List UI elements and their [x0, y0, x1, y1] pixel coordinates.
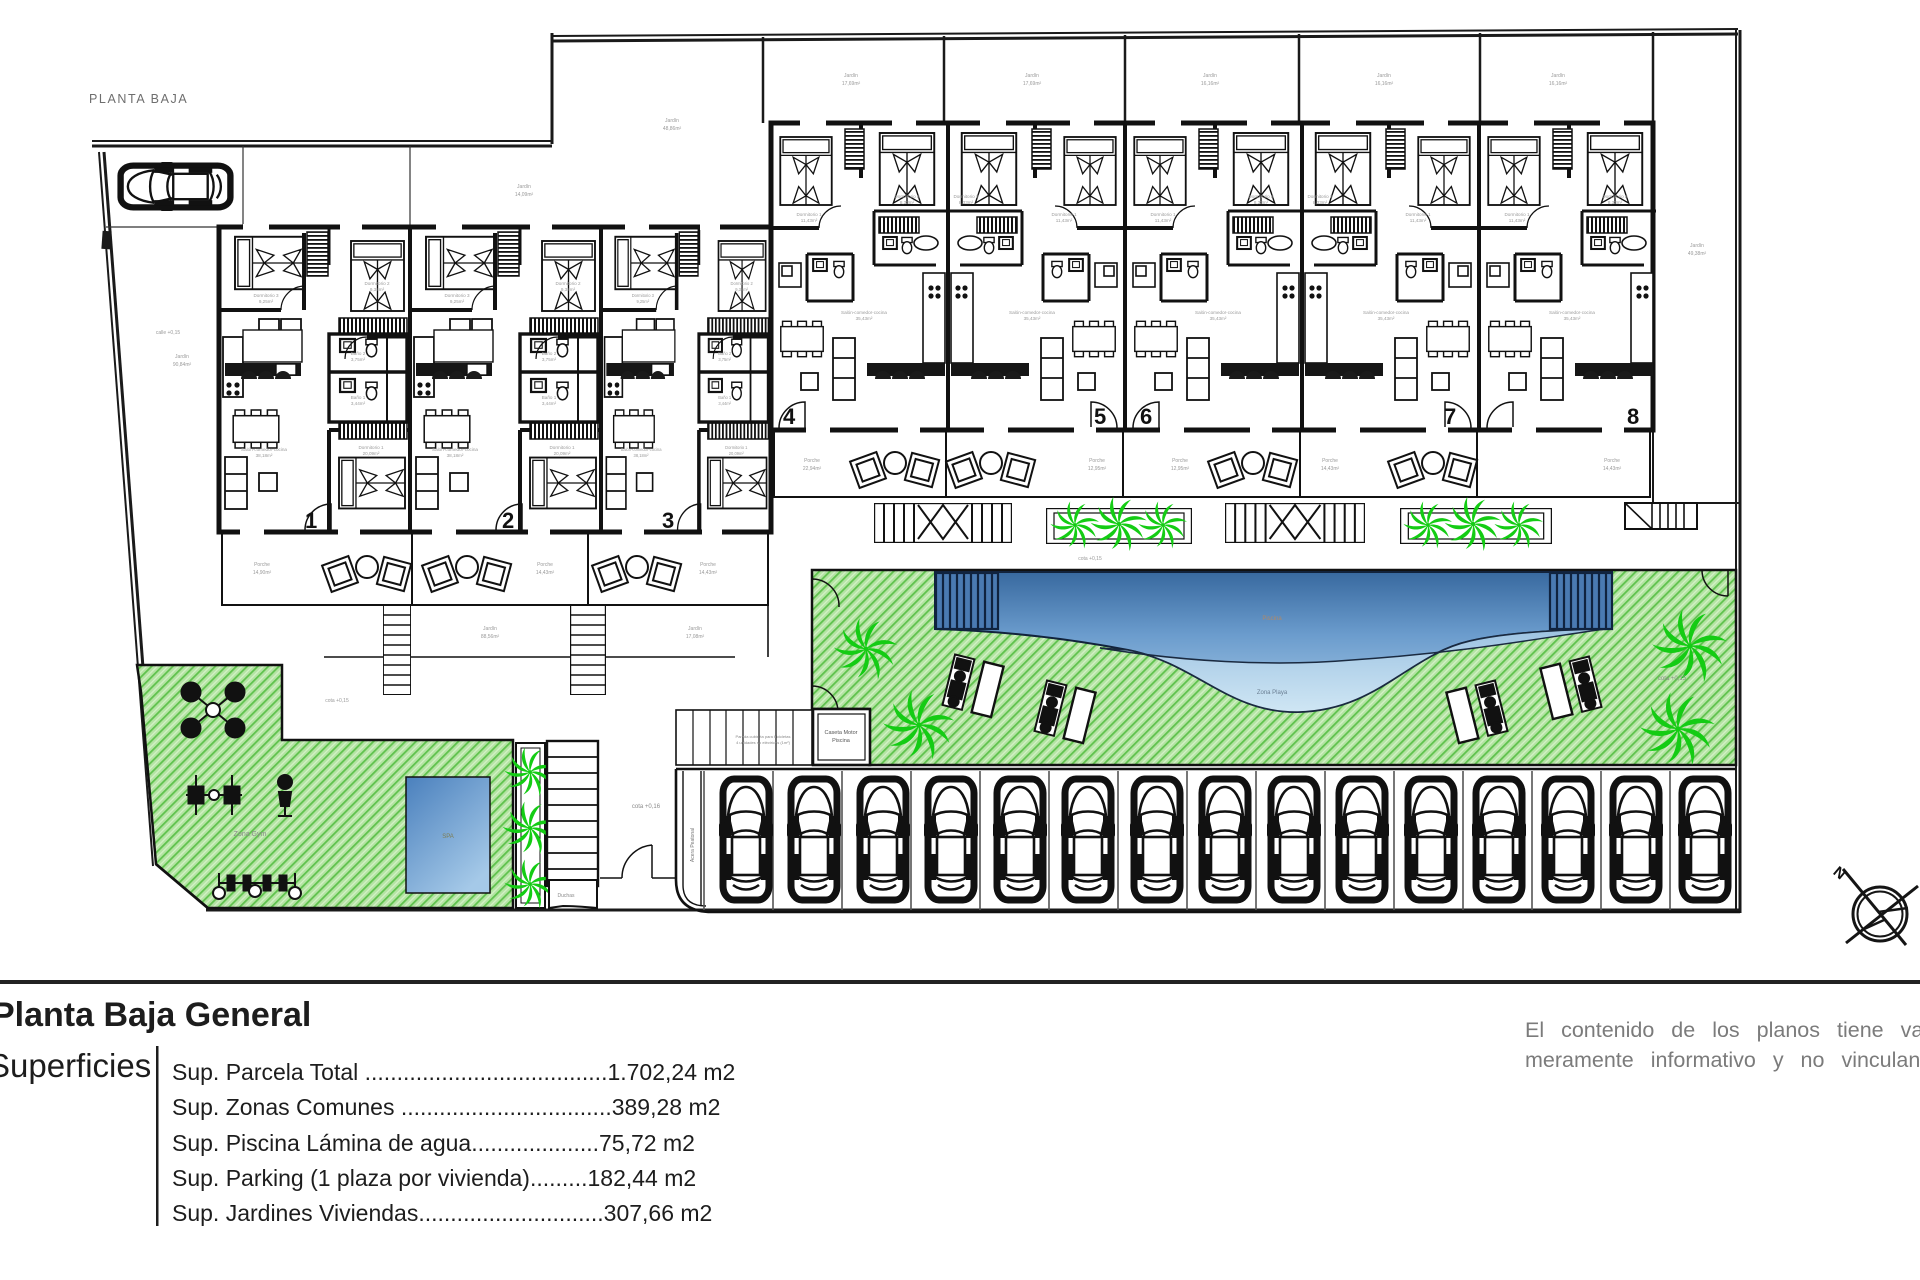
svg-text:Planta Baja General: Planta Baja General — [0, 996, 311, 1034]
svg-text:14,43m²: 14,43m² — [699, 570, 718, 576]
svg-text:Porche: Porche — [700, 562, 716, 568]
svg-text:Zona Gym: Zona Gym — [234, 831, 267, 838]
svg-text:35,43m²: 35,43m² — [1378, 316, 1395, 321]
svg-text:El contenido de los planos tie: El contenido de los planos tiene valor — [1525, 1018, 1920, 1042]
svg-text:2: 2 — [502, 508, 514, 533]
svg-text:Jardín: Jardín — [1377, 73, 1391, 79]
svg-text:Dormitorio 1: Dormitorio 1 — [1405, 212, 1430, 217]
svg-text:Jardín: Jardín — [688, 626, 702, 632]
svg-text:4 unidades no eléctricas (1m²): 4 unidades no eléctricas (1m²) — [736, 740, 790, 745]
svg-text:35,43m²: 35,43m² — [1024, 316, 1041, 321]
svg-text:11,43m²: 11,43m² — [1056, 218, 1073, 223]
svg-text:Porche: Porche — [1604, 458, 1620, 464]
svg-text:Dormitorio 1: Dormitorio 1 — [1150, 212, 1175, 217]
svg-text:Piscina: Piscina — [832, 738, 851, 744]
svg-text:Duchas: Duchas — [558, 893, 575, 899]
svg-text:35,43m²: 35,43m² — [1210, 316, 1227, 321]
svg-text:Porche: Porche — [1322, 458, 1338, 464]
svg-text:Sup. Piscina Lámina de agua...: Sup. Piscina Lámina de agua.............… — [172, 1130, 695, 1156]
svg-text:1: 1 — [305, 508, 317, 533]
svg-text:Dormitorio 2: Dormitorio 2 — [1307, 194, 1332, 199]
svg-text:8: 8 — [1627, 404, 1639, 429]
svg-text:6: 6 — [1140, 404, 1152, 429]
svg-text:90,84m²: 90,84m² — [173, 362, 192, 368]
svg-text:11,43m²: 11,43m² — [1155, 218, 1172, 223]
svg-text:16,16m²: 16,16m² — [1375, 81, 1394, 87]
svg-text:Dormitorio 1: Dormitorio 1 — [1504, 212, 1529, 217]
svg-text:Acera Peatonal: Acera Peatonal — [690, 828, 696, 862]
svg-text:cota +0,16: cota +0,16 — [632, 804, 661, 810]
svg-text:meramente informativo y no vin: meramente informativo y no vinculante — [1525, 1048, 1920, 1072]
svg-text:Sup. Parcela Total ...........: Sup. Parcela Total .....................… — [172, 1059, 735, 1085]
svg-text:11,43m²: 11,43m² — [1509, 218, 1526, 223]
svg-text:8,33m²: 8,33m² — [900, 200, 915, 205]
svg-text:Jardín: Jardín — [844, 73, 858, 79]
svg-text:88,56m²: 88,56m² — [481, 634, 500, 640]
svg-text:PLANTA BAJA: PLANTA BAJA — [89, 92, 188, 106]
svg-text:14,43m²: 14,43m² — [1603, 466, 1622, 472]
svg-text:Sup. Jardines Viviendas.......: Sup. Jardines Viviendas.................… — [172, 1200, 712, 1226]
svg-text:49,38m²: 49,38m² — [1688, 251, 1707, 257]
svg-text:22,94m²: 22,94m² — [803, 466, 822, 472]
svg-text:3: 3 — [662, 508, 674, 533]
svg-text:Jardín: Jardín — [1025, 73, 1039, 79]
svg-text:Salón-comedor-cocina: Salón-comedor-cocina — [1363, 310, 1409, 315]
svg-text:Dormitorio 1: Dormitorio 1 — [1051, 212, 1076, 217]
svg-text:Porche: Porche — [804, 458, 820, 464]
svg-text:14,43m²: 14,43m² — [1321, 466, 1340, 472]
svg-text:SPA: SPA — [442, 834, 454, 840]
svg-text:16,16m²: 16,16m² — [1549, 81, 1568, 87]
svg-text:Dormitorio 2: Dormitorio 2 — [1602, 194, 1627, 199]
svg-text:Caseta Motor: Caseta Motor — [824, 730, 857, 736]
svg-text:Porche: Porche — [537, 562, 553, 568]
svg-text:cota +0,15: cota +0,15 — [1078, 556, 1102, 562]
svg-text:17,69m²: 17,69m² — [1023, 81, 1042, 87]
svg-text:14,09m²: 14,09m² — [515, 192, 534, 198]
svg-text:Jardín: Jardín — [1203, 73, 1217, 79]
svg-text:Jardín: Jardín — [517, 184, 531, 190]
svg-text:Jardín: Jardín — [483, 626, 497, 632]
svg-text:Porche: Porche — [1089, 458, 1105, 464]
svg-text:Zona Playa: Zona Playa — [1257, 690, 1288, 696]
svg-text:Jardín: Jardín — [1551, 73, 1565, 79]
svg-text:12,95m²: 12,95m² — [1088, 466, 1107, 472]
svg-text:Piscina: Piscina — [1262, 616, 1282, 622]
svg-text:14,90m²: 14,90m² — [253, 570, 272, 576]
svg-text:Salón-comedor-cocina: Salón-comedor-cocina — [1549, 310, 1595, 315]
svg-text:35,43m²: 35,43m² — [856, 316, 873, 321]
svg-text:Superficies: Superficies — [0, 1047, 151, 1084]
svg-text:11,43m²: 11,43m² — [1410, 218, 1427, 223]
svg-text:35,43m²: 35,43m² — [1564, 316, 1581, 321]
svg-text:Salón-comedor-cocina: Salón-comedor-cocina — [1195, 310, 1241, 315]
svg-text:16,16m²: 16,16m² — [1201, 81, 1220, 87]
svg-text:Dormitorio 2: Dormitorio 2 — [1248, 194, 1273, 199]
svg-text:7: 7 — [1444, 404, 1456, 429]
svg-text:12,95m²: 12,95m² — [1171, 466, 1190, 472]
svg-text:17,69m²: 17,69m² — [842, 81, 861, 87]
svg-text:cota +0,15: cota +0,15 — [325, 698, 349, 704]
svg-text:Jardín: Jardín — [1690, 243, 1704, 249]
svg-text:cota +0,15: cota +0,15 — [1658, 676, 1687, 682]
svg-text:17,08m²: 17,08m² — [686, 634, 705, 640]
svg-text:8,33m²: 8,33m² — [1313, 200, 1328, 205]
svg-text:Sup. Parking (1 plaza por vivi: Sup. Parking (1 plaza por vivienda).....… — [172, 1165, 696, 1191]
svg-text:11,43m²: 11,43m² — [801, 218, 818, 223]
svg-text:Dormitorio 2: Dormitorio 2 — [953, 194, 978, 199]
svg-text:48,86m²: 48,86m² — [663, 126, 682, 132]
svg-text:Sup. Zonas Comunes ...........: Sup. Zonas Comunes .....................… — [172, 1094, 720, 1120]
svg-text:8,33m²: 8,33m² — [1254, 200, 1269, 205]
svg-text:14,43m²: 14,43m² — [536, 570, 555, 576]
svg-text:Salón-comedor-cocina: Salón-comedor-cocina — [1009, 310, 1055, 315]
svg-text:Parada cubierta para bicicleta: Parada cubierta para bicicletas — [736, 734, 791, 739]
svg-text:8,33m²: 8,33m² — [1608, 200, 1623, 205]
svg-text:5: 5 — [1094, 404, 1106, 429]
svg-text:calle +0,15: calle +0,15 — [156, 330, 181, 336]
svg-text:4: 4 — [783, 404, 796, 429]
svg-text:Jardín: Jardín — [175, 354, 189, 360]
svg-text:Dormitorio 2: Dormitorio 2 — [894, 194, 919, 199]
svg-text:Porche: Porche — [254, 562, 270, 568]
svg-text:Salón-comedor-cocina: Salón-comedor-cocina — [841, 310, 887, 315]
svg-text:8,33m²: 8,33m² — [959, 200, 974, 205]
svg-text:Jardín: Jardín — [665, 118, 679, 124]
svg-text:Porche: Porche — [1172, 458, 1188, 464]
svg-text:Dormitorio 1: Dormitorio 1 — [796, 212, 821, 217]
